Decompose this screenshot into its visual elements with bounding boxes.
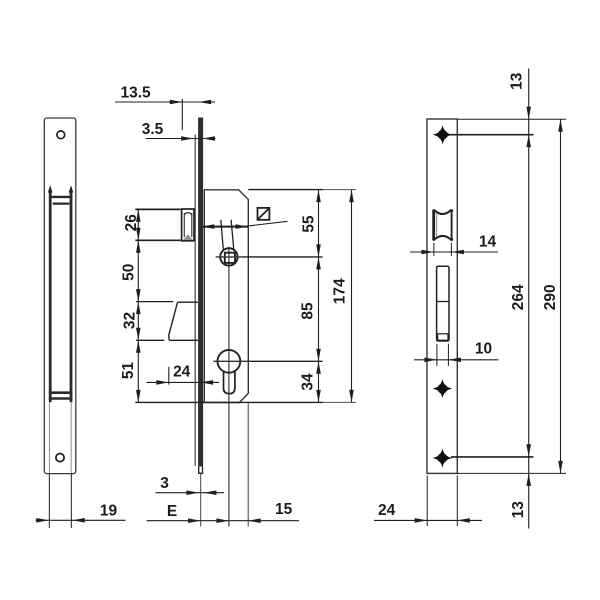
svg-text:85: 85 xyxy=(300,302,317,320)
svg-text:3: 3 xyxy=(160,475,169,492)
svg-text:290: 290 xyxy=(542,284,559,310)
svg-text:55: 55 xyxy=(301,215,318,233)
svg-text:13: 13 xyxy=(510,501,527,519)
svg-text:24: 24 xyxy=(173,364,191,381)
svg-text:E: E xyxy=(167,503,177,520)
svg-text:34: 34 xyxy=(300,373,317,391)
svg-text:13: 13 xyxy=(509,72,526,90)
svg-text:19: 19 xyxy=(100,503,118,520)
svg-text:174: 174 xyxy=(332,278,349,304)
svg-text:264: 264 xyxy=(510,284,527,310)
svg-text:13.5: 13.5 xyxy=(121,84,152,101)
svg-text:15: 15 xyxy=(275,501,293,518)
svg-text:24: 24 xyxy=(378,502,396,519)
svg-text:3.5: 3.5 xyxy=(142,121,164,138)
svg-text:10: 10 xyxy=(475,340,492,357)
svg-text:14: 14 xyxy=(479,233,497,250)
svg-text:32: 32 xyxy=(122,312,139,329)
svg-text:26: 26 xyxy=(123,214,140,232)
svg-text:51: 51 xyxy=(120,362,137,380)
svg-text:50: 50 xyxy=(121,264,138,281)
